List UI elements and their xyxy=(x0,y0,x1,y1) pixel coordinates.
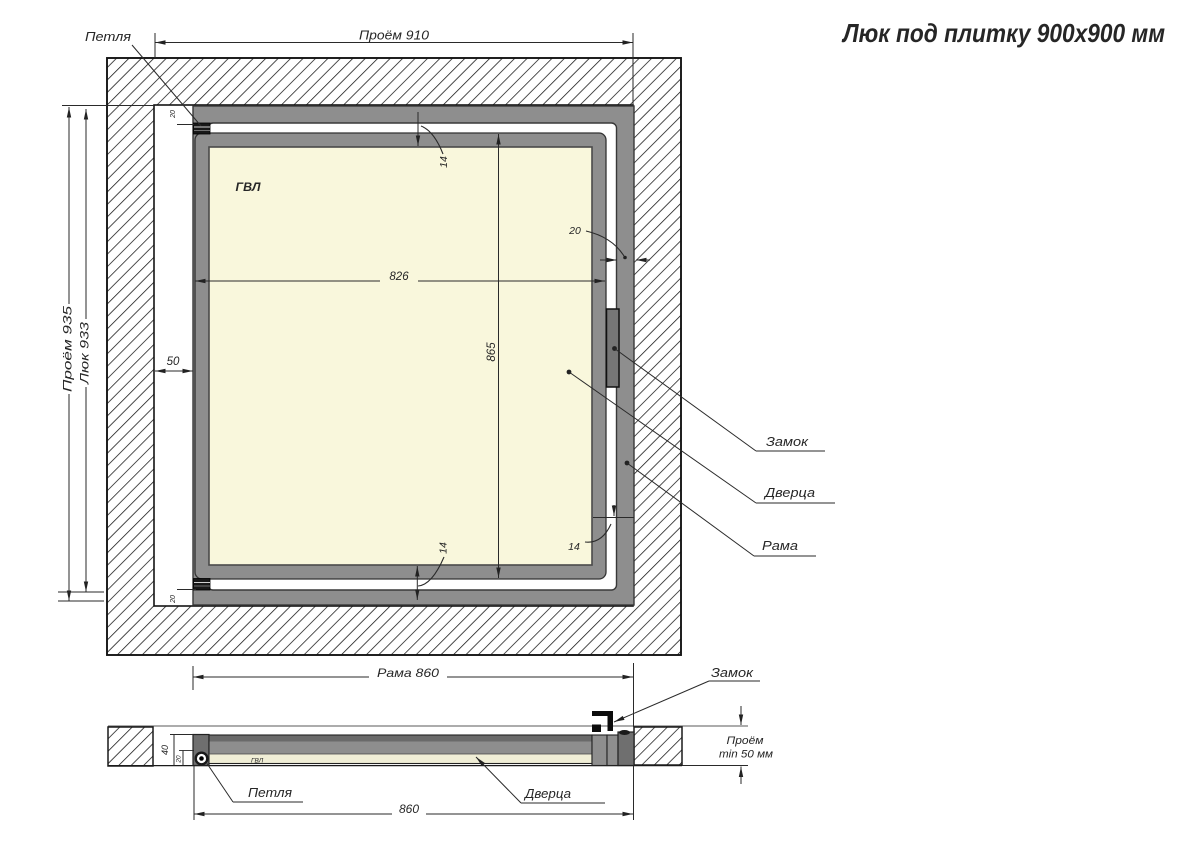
svg-text:14: 14 xyxy=(568,541,580,553)
svg-text:Дверца: Дверца xyxy=(763,486,815,500)
svg-text:ГВЛ: ГВЛ xyxy=(251,758,264,765)
svg-text:Дверца: Дверца xyxy=(523,787,571,801)
svg-text:20: 20 xyxy=(170,110,177,119)
svg-text:Петля: Петля xyxy=(85,30,131,44)
svg-text:Проём: Проём xyxy=(727,735,764,747)
svg-text:14: 14 xyxy=(438,542,450,554)
svg-text:Проём 935: Проём 935 xyxy=(63,305,75,392)
svg-text:Люк 933: Люк 933 xyxy=(80,321,92,385)
svg-text:14: 14 xyxy=(438,156,450,168)
svg-text:Рама 860: Рама 860 xyxy=(377,666,439,680)
svg-text:min 50 мм: min 50 мм xyxy=(719,749,773,761)
svg-text:50: 50 xyxy=(167,356,180,368)
svg-text:Рама: Рама xyxy=(762,539,798,553)
svg-text:ГВЛ: ГВЛ xyxy=(236,180,262,194)
svg-text:20: 20 xyxy=(176,755,183,764)
svg-text:Петля: Петля xyxy=(248,786,292,800)
svg-text:40: 40 xyxy=(160,745,170,755)
svg-text:Люк под плитку 900х900 мм: Люк под плитку 900х900 мм xyxy=(841,18,1165,48)
svg-text:Проём 910: Проём 910 xyxy=(359,29,429,43)
svg-text:20: 20 xyxy=(170,595,177,604)
svg-text:860: 860 xyxy=(399,802,419,816)
svg-text:865: 865 xyxy=(486,342,498,362)
svg-text:826: 826 xyxy=(389,271,409,283)
svg-text:Замок: Замок xyxy=(766,435,809,449)
svg-text:Замок: Замок xyxy=(711,666,754,680)
svg-text:20: 20 xyxy=(568,225,581,237)
